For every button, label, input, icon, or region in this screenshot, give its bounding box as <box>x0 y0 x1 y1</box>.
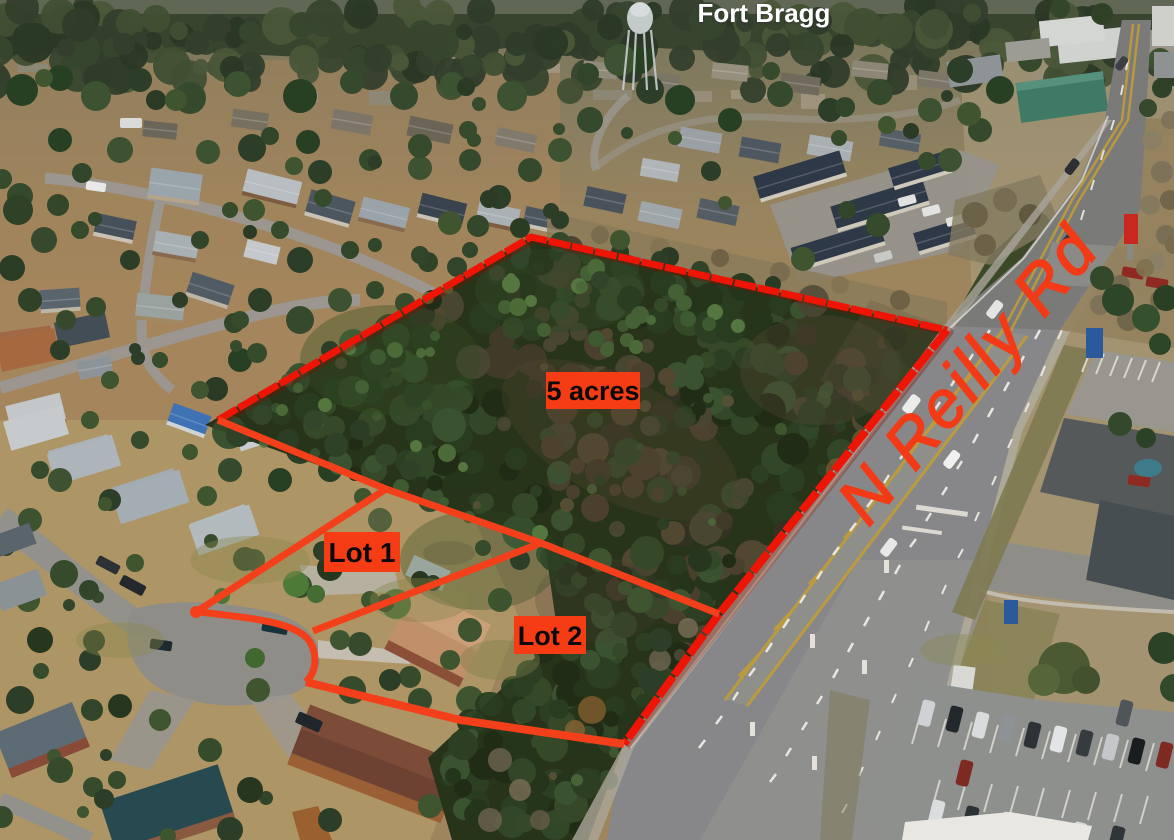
svg-text:Fort Bragg: Fort Bragg <box>698 0 831 28</box>
svg-text:5 acres: 5 acres <box>546 376 639 406</box>
svg-text:Lot 1: Lot 1 <box>329 537 396 568</box>
svg-text:Lot 2: Lot 2 <box>518 621 583 651</box>
